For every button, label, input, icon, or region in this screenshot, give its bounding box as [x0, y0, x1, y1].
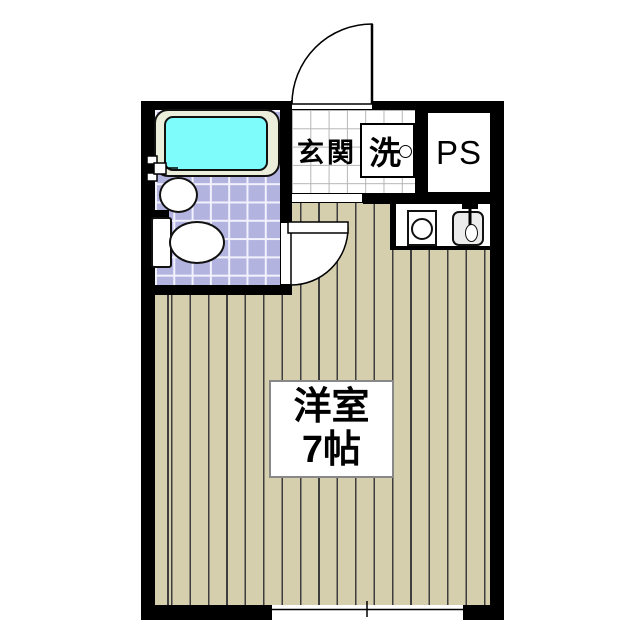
- wall-genkan-ps: [415, 101, 428, 204]
- wall-bathroom-bottom: [141, 285, 292, 295]
- washer-tap-icon: [399, 145, 412, 158]
- genkan-label-text: 玄関: [297, 131, 357, 170]
- entrance-threshold: [291, 100, 373, 110]
- wash-basin: [159, 177, 198, 213]
- window-opening: [272, 605, 463, 620]
- wall-left: [141, 101, 155, 620]
- entrance-door-swing: [292, 24, 372, 104]
- genkan-step: [291, 193, 363, 203]
- bathroom-doorway: [281, 222, 292, 285]
- floor-plan: 玄関 洗 PS: [0, 0, 640, 640]
- wall-right: [490, 101, 504, 620]
- main-room-size: 7帖: [302, 429, 361, 472]
- washing-machine-label-text: 洗: [369, 128, 401, 174]
- toilet-bowl: [169, 221, 225, 264]
- pipe-space-label-text: PS: [436, 134, 482, 172]
- genkan-label: 玄関: [294, 130, 360, 170]
- bathtub-water: [164, 116, 268, 171]
- kitchen-burner-ring-icon: [411, 218, 433, 240]
- kitchen-sink-drain-icon: [465, 224, 478, 242]
- main-room-label: 洋室 7帖: [269, 380, 394, 478]
- pipe-space-label: PS: [428, 113, 490, 192]
- main-room-name: 洋室: [293, 386, 369, 429]
